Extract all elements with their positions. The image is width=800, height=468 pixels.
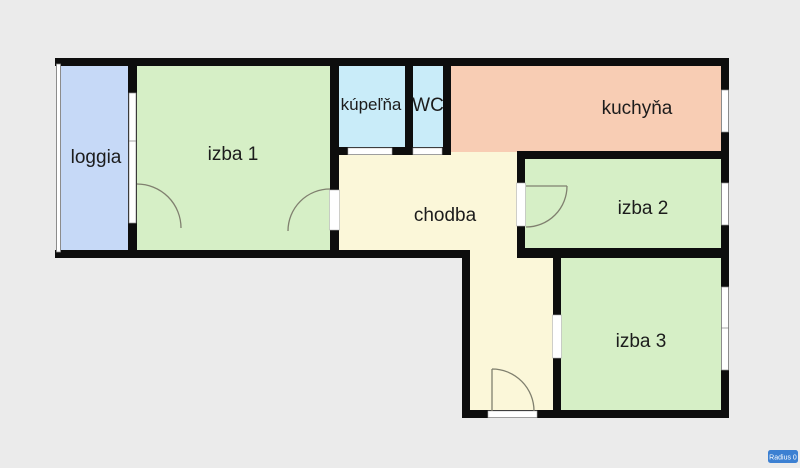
floor-plan-svg: loggia izba 1 kúpeľňa WC kuchyňa chodba … — [0, 0, 800, 468]
wall-wc-kuchyna — [443, 58, 451, 155]
kuchyna-window — [722, 90, 729, 132]
loggia-window-band — [57, 64, 61, 252]
room-kuchyna — [448, 60, 724, 157]
wall-kuchyna-izba2 — [517, 151, 723, 159]
izba2-door-opening — [517, 183, 526, 226]
label-kupelna: kúpeľňa — [341, 95, 402, 114]
floor-plan-canvas: loggia izba 1 kúpeľňa WC kuchyňa chodba … — [0, 0, 800, 468]
wall-chodba-left — [462, 250, 470, 418]
wall-top — [55, 58, 729, 66]
entrance-door-opening — [488, 411, 537, 418]
kupelna-door-opening — [348, 148, 392, 155]
label-izba3: izba 3 — [616, 331, 667, 352]
wc-door-opening — [413, 148, 442, 155]
label-izba1: izba 1 — [208, 144, 259, 165]
izba3-door-opening — [553, 315, 562, 358]
label-loggia: loggia — [71, 147, 122, 168]
room-chodba-upper — [335, 152, 523, 256]
radius-badge: Radius 0 — [768, 450, 798, 463]
radius-badge-label: Radius 0 — [769, 455, 797, 462]
label-izba2: izba 2 — [618, 198, 669, 219]
izba1-door-opening — [330, 190, 340, 230]
izba2-window — [722, 183, 729, 225]
label-kuchyna: kuchyňa — [602, 98, 673, 119]
wall-bottom-upper — [55, 250, 470, 258]
label-chodba: chodba — [414, 205, 477, 226]
room-chodba-lower — [465, 250, 557, 415]
label-wc: WC — [412, 95, 444, 116]
wall-izba2-izba3 — [517, 248, 729, 258]
balcony-door-window — [129, 93, 136, 223]
izba3-window — [722, 287, 729, 370]
